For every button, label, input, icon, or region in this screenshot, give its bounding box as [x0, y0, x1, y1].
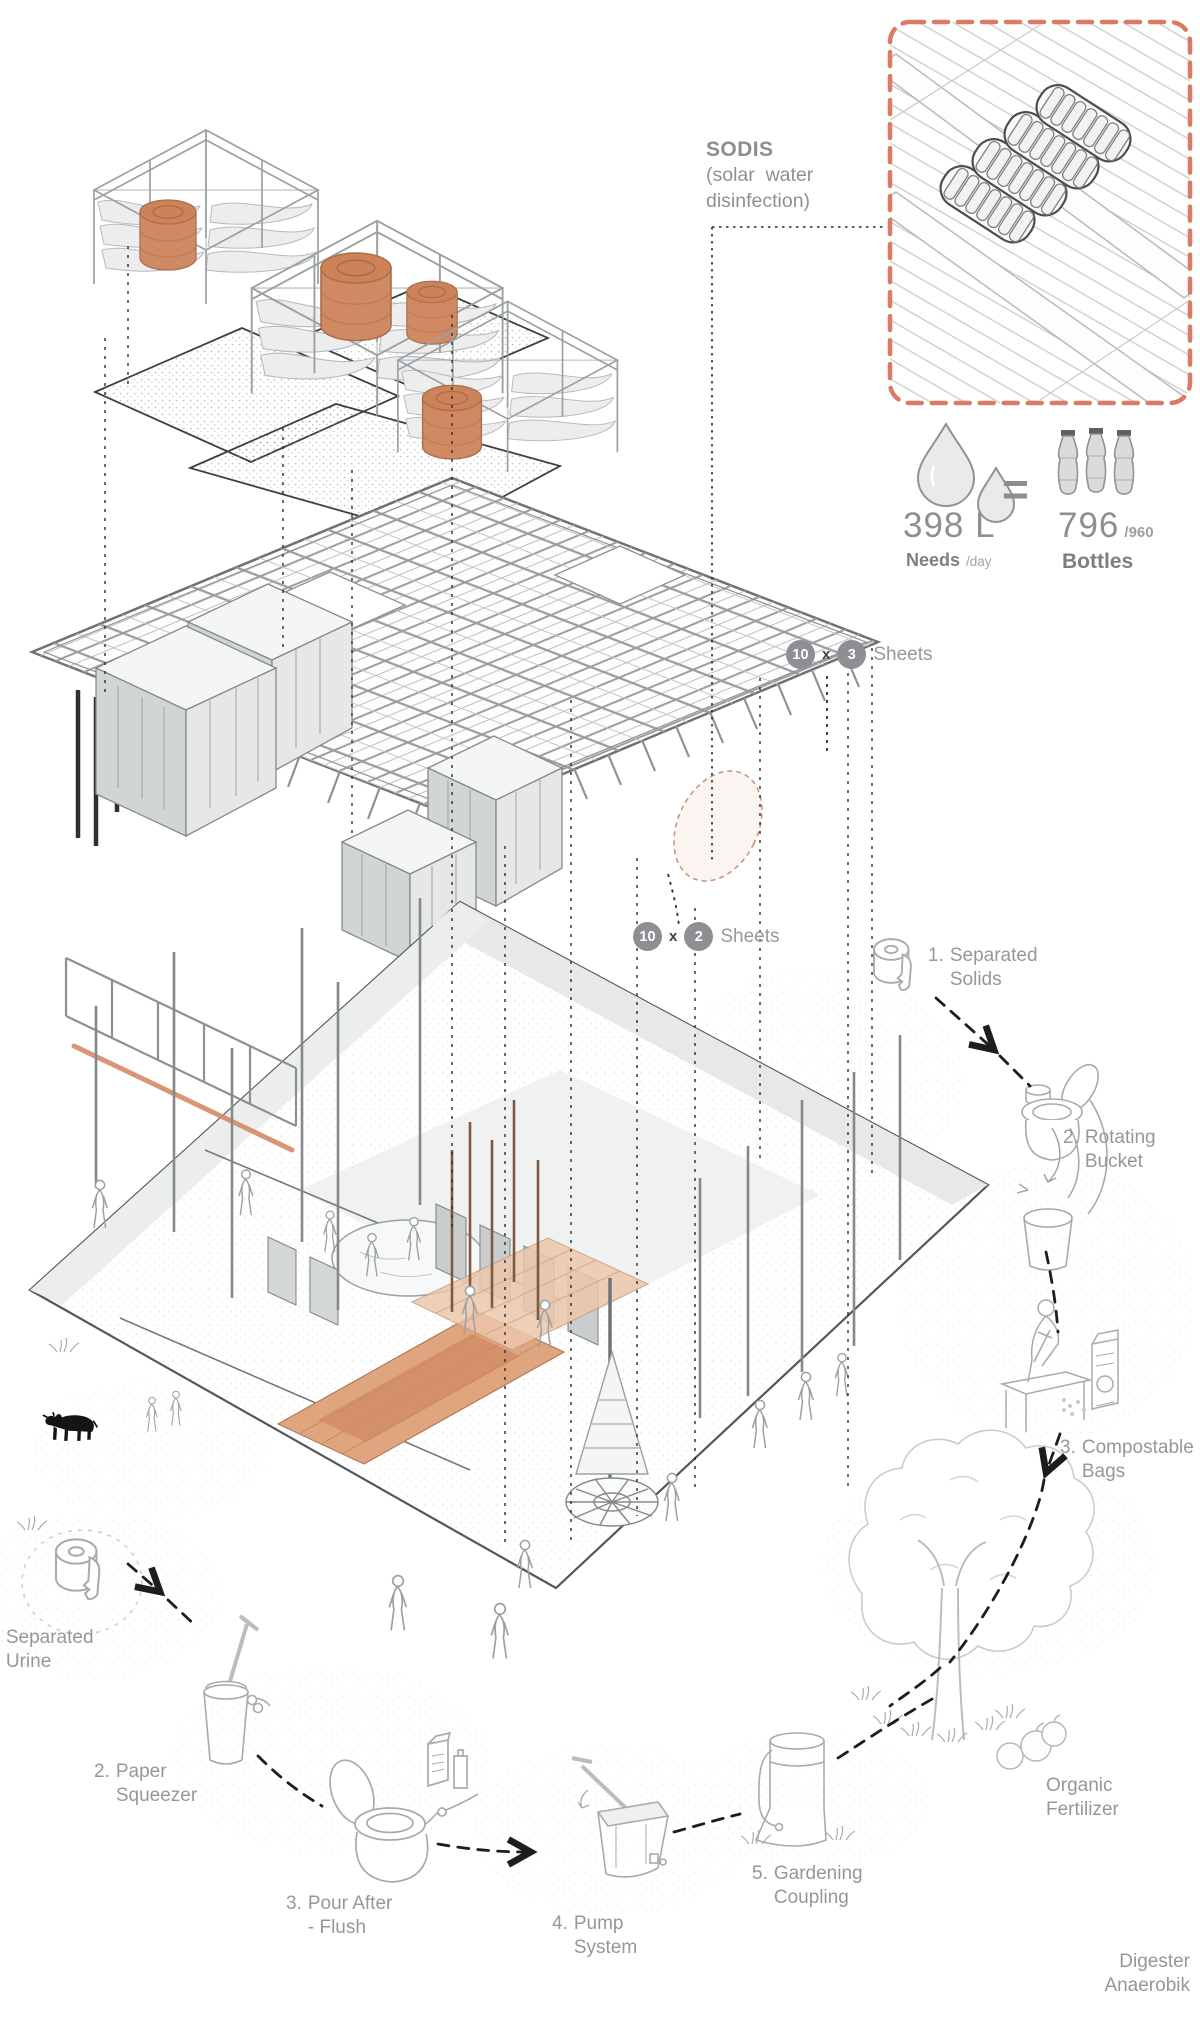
flow-step-paper-squeezer: 2. Paper Squeezer [94, 1760, 208, 1807]
count-circle: 10 [633, 922, 662, 951]
fruit-icons [997, 1715, 1066, 1769]
step-label: Paper Squeezer [116, 1760, 208, 1807]
times-sign: x [669, 928, 677, 945]
sheets-badge-walls: 10 x 2 Sheets [633, 922, 780, 951]
sheets-badge-roof: 10 x 3 Sheets [786, 640, 933, 669]
flow-step-rotating-bucket: 2. Rotating Bucket [1063, 1126, 1170, 1173]
sodis-leader-line [712, 227, 884, 864]
sodis-roof-highlight [657, 756, 780, 895]
sodis-title: SODIS [706, 136, 876, 163]
step-number: 1. [928, 944, 944, 991]
sheets-label: Sheets [720, 926, 779, 948]
step-label: Separated Urine [6, 1626, 101, 1673]
flow-step-separated-solids: 1. Separated Solids [928, 944, 1045, 991]
diagram-canvas: SODIS (solar water disinfection) 398 L N… [0, 0, 1200, 2039]
step-number: 2. [94, 1760, 110, 1807]
sodis-label: SODIS (solar water disinfection) [706, 136, 876, 214]
needs-unit: /day [966, 554, 992, 569]
sodis-subtitle-line2: disinfection) [706, 189, 876, 214]
step-label: Compostable Bags [1082, 1436, 1200, 1483]
tree-icon [849, 1430, 1094, 1742]
step-label: Rotating Bucket [1085, 1126, 1170, 1173]
diagram-artwork [0, 0, 1200, 2039]
sheets-label: Sheets [873, 644, 932, 666]
sodis-subtitle-line1: (solar water [706, 163, 876, 188]
digester-label: Digester Anaerobik [1078, 1950, 1190, 1997]
times-sign: x [822, 646, 830, 663]
flow-step-pour-after-flush: 3. Pour After - Flush [286, 1892, 402, 1939]
step-label: Pump System [574, 1912, 646, 1959]
step-number: 2. [1063, 1126, 1079, 1173]
water-needs-value: 398 L [903, 506, 996, 546]
bottles-value: 796 [1058, 506, 1119, 546]
sodis-roof-bottles-detail [874, 22, 1200, 428]
equals-sign: = [1002, 466, 1029, 512]
cubicle-box [96, 626, 276, 836]
step-label: Separated Solids [950, 944, 1045, 991]
flow-step-separated-urine: 1. Separated Urine [0, 1626, 101, 1673]
step-number: 3. [286, 1892, 302, 1939]
flow-step-compostable-bags: 3. Compostable Bags [1060, 1436, 1200, 1483]
water-needs-label: Needs /day [906, 550, 992, 571]
step-number: 4. [552, 1912, 568, 1959]
needs-label: Needs [906, 550, 960, 571]
bottles-value-row: 796 /960 [1058, 506, 1154, 546]
step-number: 3. [1060, 1436, 1076, 1483]
count-circle: 3 [837, 640, 866, 669]
count-circle: 2 [684, 922, 713, 951]
bottles-label-row: Bottles [1062, 550, 1133, 574]
bottles-label: Bottles [1062, 550, 1133, 574]
flow-step-pump-system: 4. Pump System [552, 1912, 646, 1959]
step-label: Pour After - Flush [308, 1892, 402, 1939]
flow-step-gardening-coupling: 5. Gardening Coupling [752, 1862, 872, 1909]
pet-bottles-icon [1059, 428, 1134, 494]
step-label: Gardening Coupling [774, 1862, 872, 1909]
count-circle: 10 [786, 640, 815, 669]
bottles-total: /960 [1124, 524, 1153, 541]
step-number: 5. [752, 1862, 768, 1909]
organic-fertilizer-label: Organic Fertilizer [1046, 1774, 1134, 1821]
